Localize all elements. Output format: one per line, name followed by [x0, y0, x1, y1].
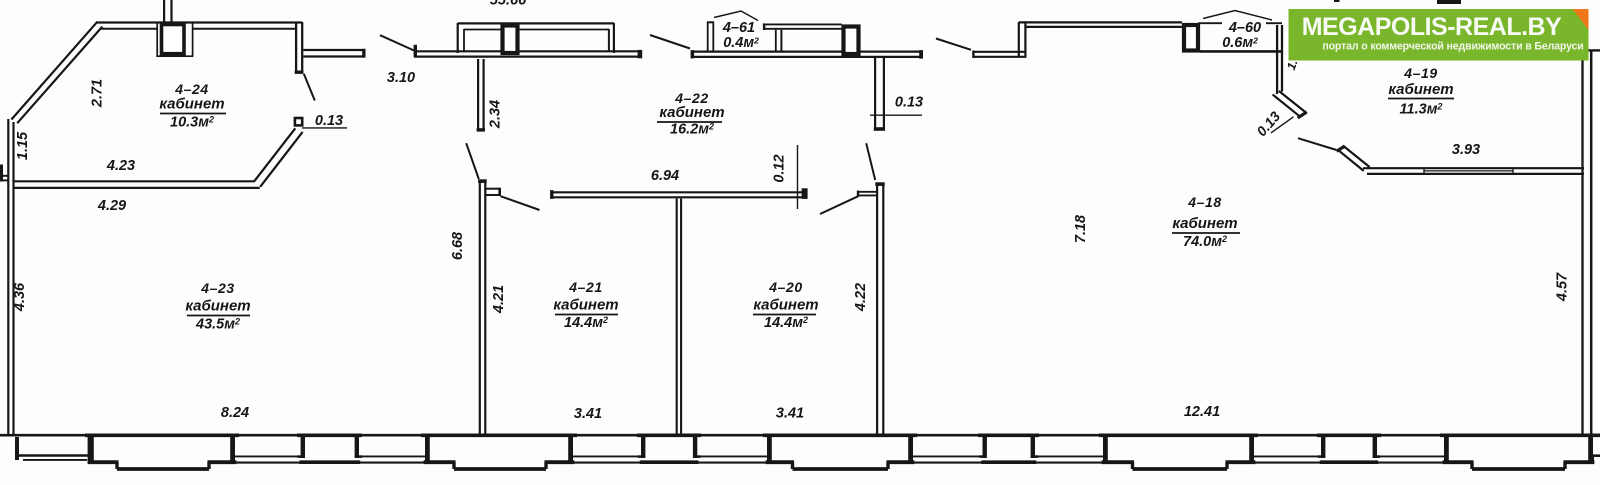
- svg-text:3.41: 3.41: [574, 406, 602, 422]
- svg-text:6.68: 6.68: [450, 231, 466, 260]
- svg-text:14.4м2: 14.4м2: [564, 315, 608, 331]
- svg-text:3.10: 3.10: [387, 70, 415, 86]
- svg-text:4.23: 4.23: [106, 158, 135, 174]
- svg-text:кабинет: кабинет: [185, 298, 250, 315]
- svg-text:43.5м2: 43.5м2: [195, 317, 240, 333]
- svg-text:4–19: 4–19: [1403, 65, 1438, 81]
- svg-text:74.0м2: 74.0м2: [1183, 234, 1227, 250]
- svg-text:4.57: 4.57: [1555, 272, 1571, 302]
- svg-text:12.41: 12.41: [1184, 404, 1220, 420]
- svg-text:4–20: 4–20: [768, 279, 803, 295]
- svg-text:3.41: 3.41: [776, 406, 804, 422]
- svg-text:7.18: 7.18: [1073, 214, 1089, 243]
- svg-text:2.34: 2.34: [488, 100, 504, 129]
- svg-text:0.13: 0.13: [895, 95, 923, 111]
- svg-text:11.3м2: 11.3м2: [1400, 102, 1443, 118]
- svg-text:MEGAPOLIS-REAL.BY: MEGAPOLIS-REAL.BY: [1302, 13, 1562, 41]
- svg-text:6.94: 6.94: [651, 168, 679, 184]
- svg-text:кабинет: кабинет: [659, 104, 724, 121]
- svg-text:3.93: 3.93: [1452, 142, 1480, 158]
- svg-text:4–18: 4–18: [1187, 194, 1222, 210]
- svg-text:10.3м2: 10.3м2: [170, 115, 214, 131]
- svg-text:4.29: 4.29: [97, 198, 126, 214]
- svg-text:0.6м2: 0.6м2: [1222, 35, 1258, 51]
- svg-text:14.4м2: 14.4м2: [764, 315, 808, 331]
- svg-text:кабинет: кабинет: [553, 297, 618, 314]
- svg-text:портал о коммерческой недвижим: портал о коммерческой недвижимости в Бел…: [1322, 41, 1583, 53]
- svg-text:0.13: 0.13: [315, 113, 343, 129]
- svg-text:кабинет: кабинет: [1172, 215, 1237, 232]
- svg-text:кабинет: кабинет: [159, 96, 224, 113]
- svg-text:4–61: 4–61: [722, 20, 755, 36]
- svg-text:8.24: 8.24: [221, 405, 249, 421]
- svg-text:4–60: 4–60: [1228, 20, 1261, 36]
- svg-text:0.4м2: 0.4м2: [723, 35, 759, 51]
- svg-text:4.36: 4.36: [12, 282, 28, 312]
- svg-text:4–21: 4–21: [568, 279, 603, 295]
- svg-text:4–23: 4–23: [200, 280, 235, 296]
- svg-text:0.12: 0.12: [772, 154, 788, 182]
- svg-text:16.2м2: 16.2м2: [670, 122, 714, 138]
- svg-text:кабинет: кабинет: [753, 297, 818, 314]
- svg-text:1.15: 1.15: [15, 131, 31, 160]
- svg-text:кабинет: кабинет: [1388, 81, 1453, 98]
- svg-text:4.22: 4.22: [853, 283, 869, 312]
- svg-text:2.71: 2.71: [90, 79, 106, 108]
- svg-text:4.21: 4.21: [491, 285, 507, 314]
- svg-text:55.66: 55.66: [490, 0, 527, 9]
